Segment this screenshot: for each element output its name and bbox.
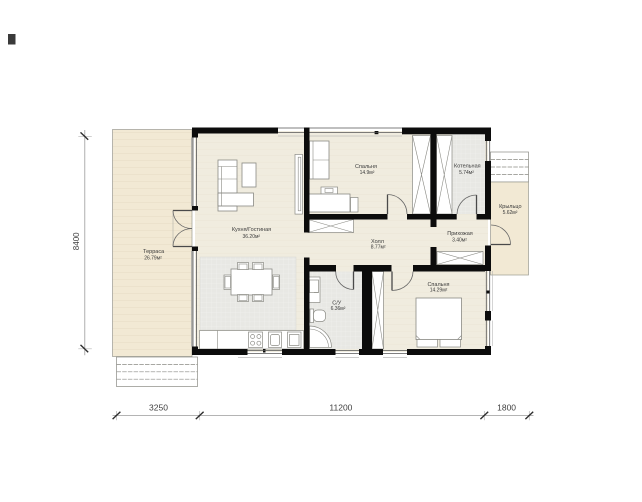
- svg-text:Прихожая: Прихожая: [447, 231, 473, 237]
- svg-text:3250: 3250: [149, 402, 168, 412]
- svg-text:26.79м²: 26.79м²: [144, 256, 162, 262]
- svg-text:Котельная: Котельная: [454, 163, 481, 169]
- svg-text:14.29м²: 14.29м²: [430, 287, 448, 293]
- svg-text:5.74м²: 5.74м²: [459, 170, 474, 176]
- svg-text:8400: 8400: [72, 232, 81, 250]
- svg-text:6.36м²: 6.36м²: [331, 306, 346, 312]
- svg-text:Терраса: Терраса: [143, 249, 165, 255]
- svg-text:3.40м²: 3.40м²: [452, 237, 467, 243]
- svg-text:1800: 1800: [497, 402, 516, 412]
- svg-text:Спальня: Спальня: [355, 164, 377, 170]
- svg-text:Кухня/Гостиная: Кухня/Гостиная: [232, 227, 271, 233]
- svg-text:8.77м²: 8.77м²: [371, 245, 386, 251]
- svg-text:14.9м²: 14.9м²: [360, 170, 375, 176]
- svg-text:5.62м²: 5.62м²: [503, 210, 518, 216]
- svg-text:11200: 11200: [329, 402, 352, 412]
- svg-text:36.20м²: 36.20м²: [242, 234, 260, 240]
